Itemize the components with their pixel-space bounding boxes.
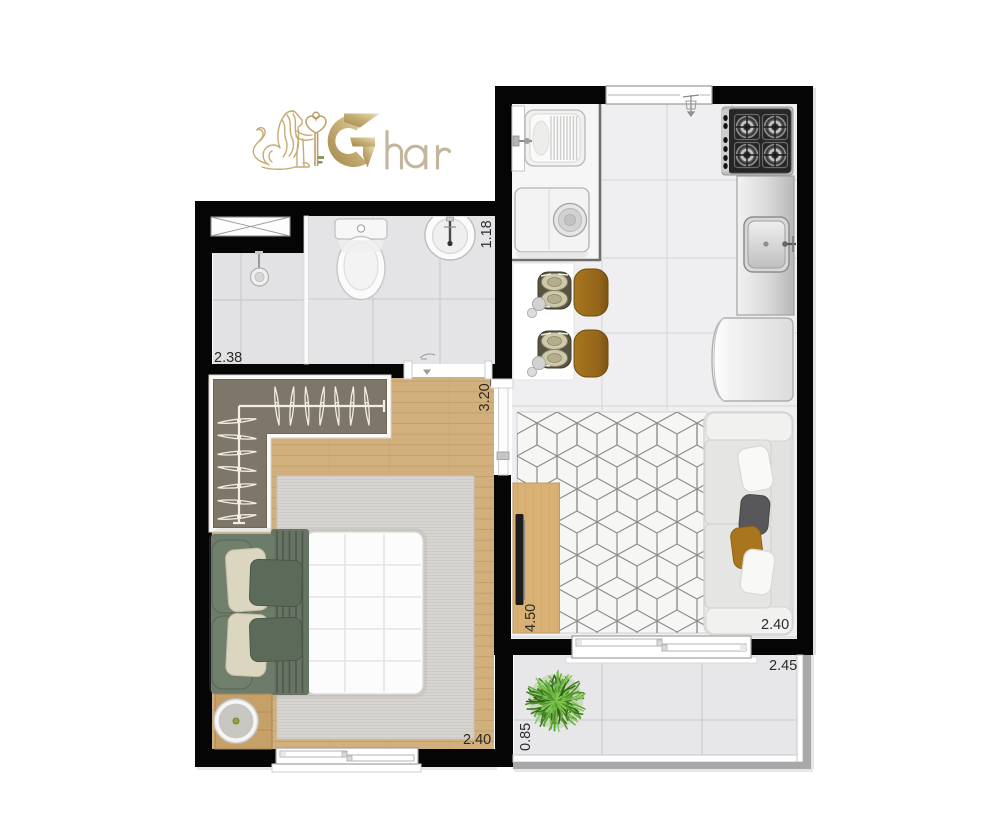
svg-text:2.40: 2.40 [463, 732, 491, 748]
svg-text:2.38: 2.38 [214, 350, 242, 366]
svg-text:3.20: 3.20 [477, 383, 493, 411]
svg-text:1.18: 1.18 [479, 220, 495, 248]
svg-text:4.50: 4.50 [523, 604, 539, 632]
svg-text:2.40: 2.40 [761, 617, 789, 633]
svg-text:0.85: 0.85 [518, 723, 534, 751]
svg-text:2.45: 2.45 [769, 658, 797, 674]
